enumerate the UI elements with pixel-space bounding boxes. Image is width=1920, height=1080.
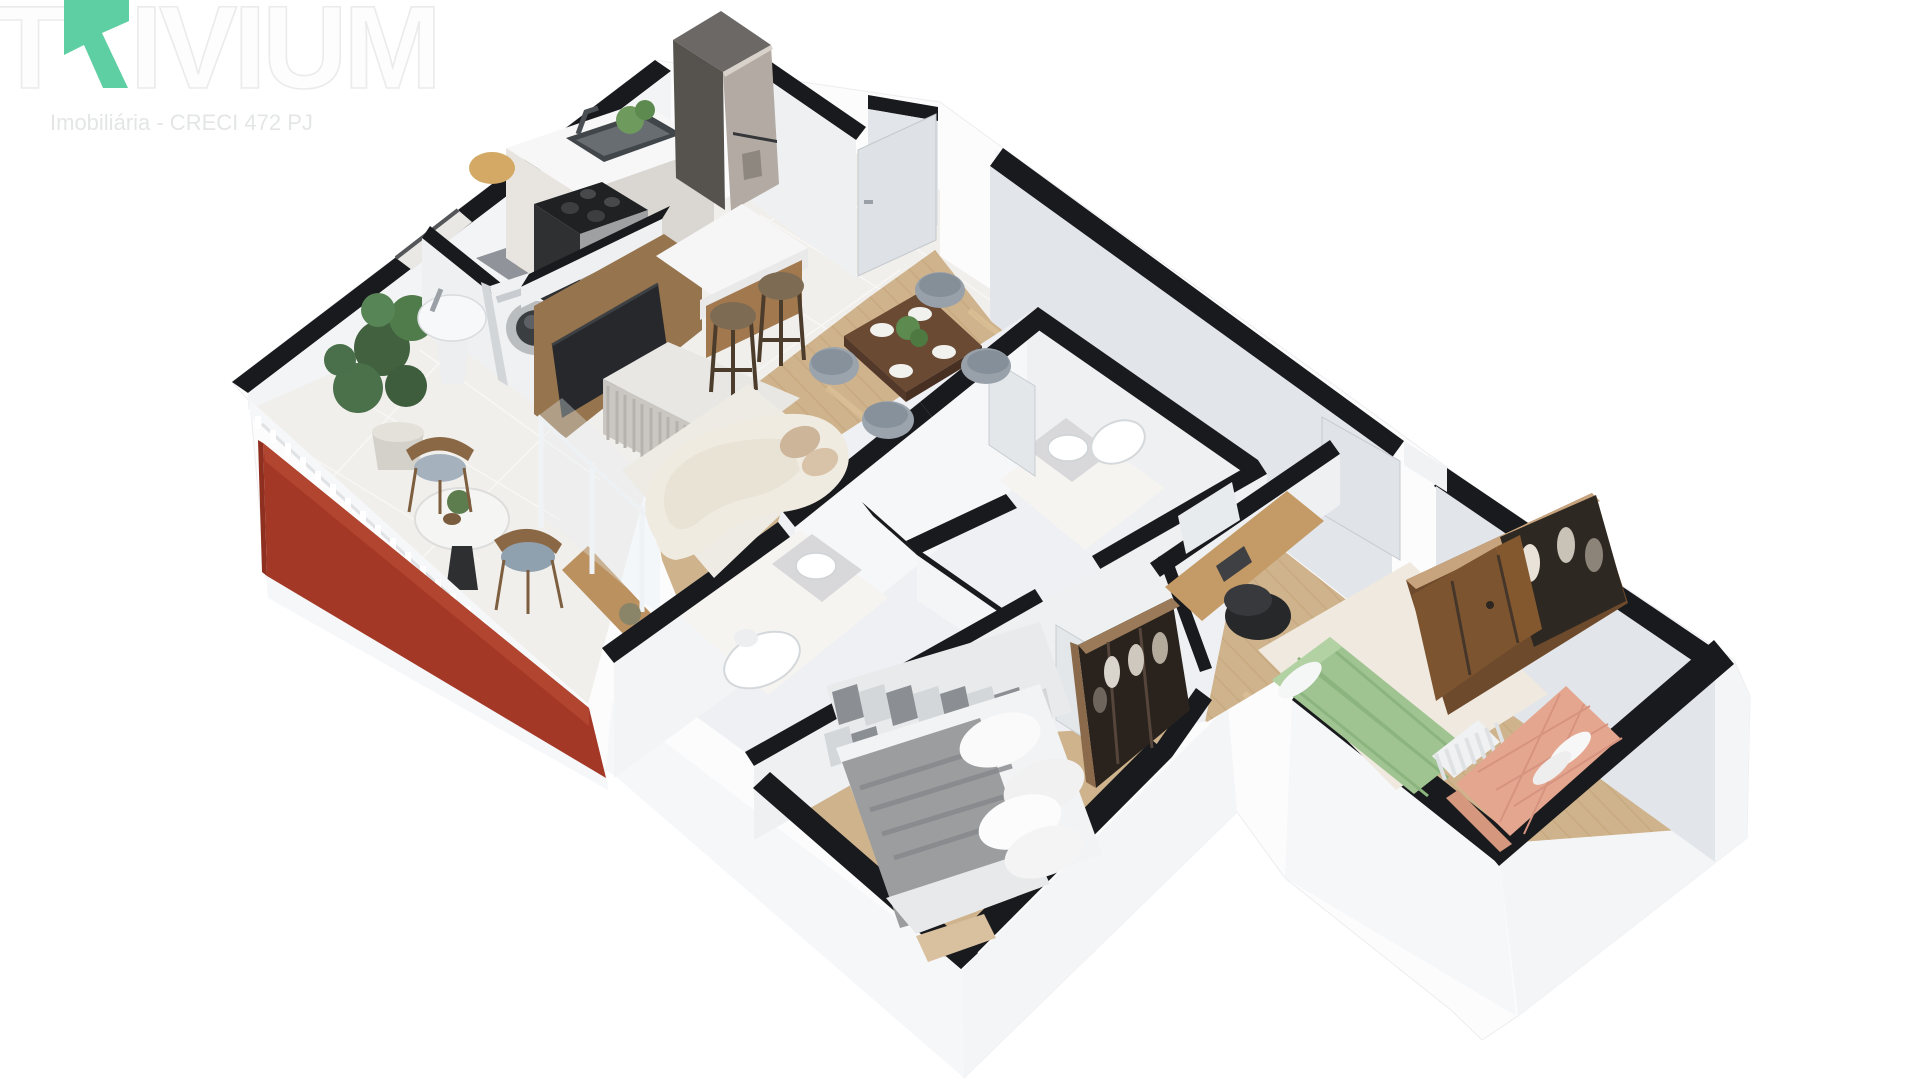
svg-text:IVIUM: IVIUM xyxy=(130,0,438,114)
svg-text:Imobiliária - CRECI 472 PJ: Imobiliária - CRECI 472 PJ xyxy=(50,110,313,135)
svg-text:T: T xyxy=(0,0,65,114)
